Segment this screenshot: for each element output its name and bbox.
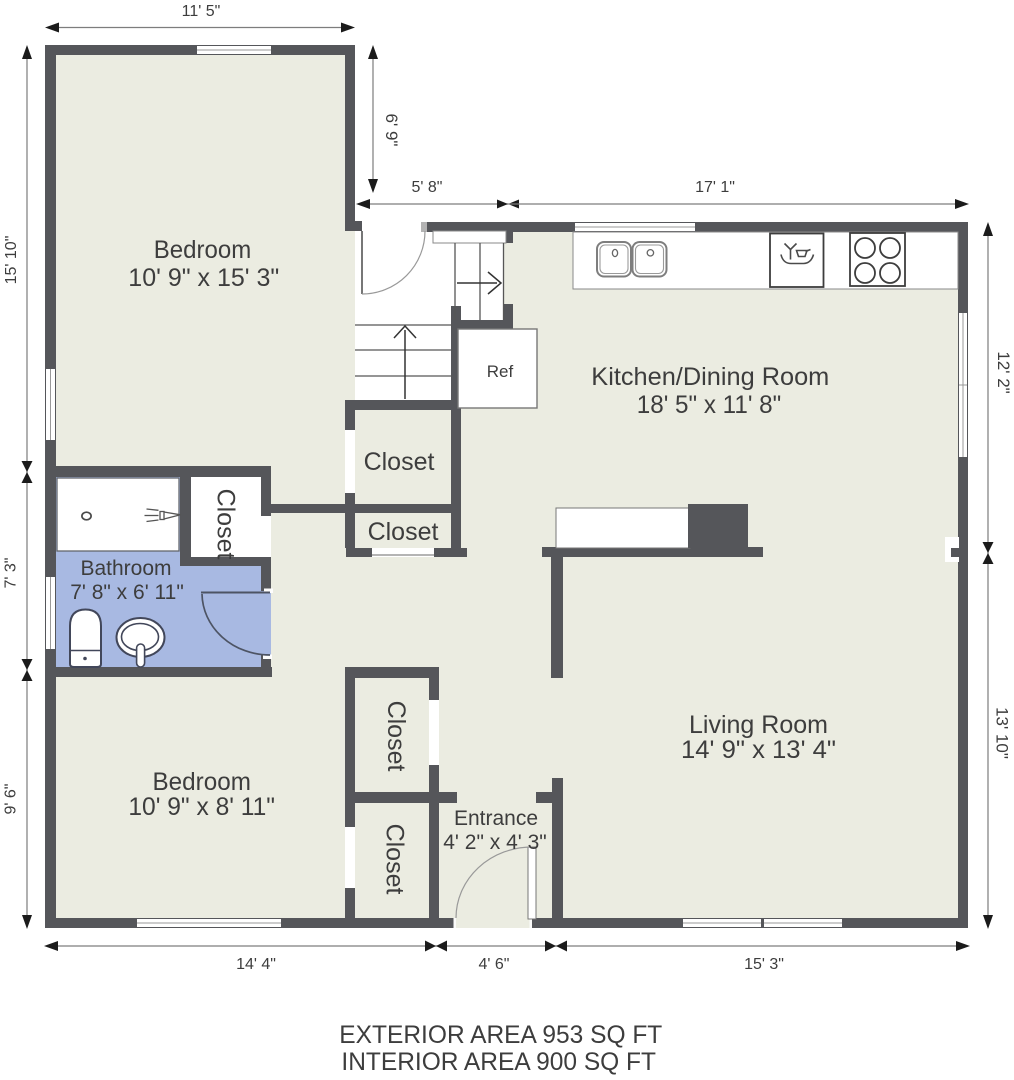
svg-text:Closet: Closet — [381, 824, 409, 895]
svg-text:Closet: Closet — [368, 518, 439, 546]
svg-text:INTERIOR AREA 900 SQ FT: INTERIOR AREA 900 SQ FT — [341, 1048, 656, 1076]
svg-text:Bathroom: Bathroom — [80, 557, 171, 580]
svg-text:17' 1": 17' 1" — [695, 179, 735, 196]
svg-text:7' 3": 7' 3" — [3, 558, 20, 589]
svg-text:13' 10": 13' 10" — [993, 707, 1012, 759]
svg-text:4' 2" x 4' 3": 4' 2" x 4' 3" — [443, 831, 546, 854]
svg-text:EXTERIOR AREA 953 SQ FT: EXTERIOR AREA 953 SQ FT — [339, 1021, 662, 1049]
svg-text:Entrance: Entrance — [454, 807, 538, 830]
svg-text:Closet: Closet — [212, 489, 240, 560]
svg-text:Ref: Ref — [487, 362, 514, 381]
svg-text:5' 8": 5' 8" — [412, 179, 443, 196]
svg-text:12' 2": 12' 2" — [994, 351, 1013, 393]
svg-text:11' 5": 11' 5" — [182, 3, 221, 20]
svg-text:Living Room: Living Room — [689, 711, 828, 739]
svg-text:Kitchen/Dining Room: Kitchen/Dining Room — [591, 363, 829, 391]
svg-text:Bedroom: Bedroom — [154, 236, 252, 264]
svg-text:Closet: Closet — [382, 701, 410, 772]
svg-text:14' 9" x 13' 4": 14' 9" x 13' 4" — [681, 736, 836, 764]
svg-text:18' 5" x 11' 8": 18' 5" x 11' 8" — [637, 391, 782, 419]
svg-text:10' 9" x 15' 3": 10' 9" x 15' 3" — [128, 264, 279, 292]
svg-text:15' 3": 15' 3" — [744, 956, 784, 973]
svg-text:15' 10": 15' 10" — [3, 236, 20, 285]
svg-text:7' 8" x 6' 11": 7' 8" x 6' 11" — [70, 581, 184, 604]
svg-text:4' 6": 4' 6" — [479, 956, 510, 973]
svg-text:14' 4": 14' 4" — [236, 956, 276, 973]
svg-text:10' 9" x 8' 11": 10' 9" x 8' 11" — [128, 793, 275, 821]
svg-text:Closet: Closet — [364, 448, 435, 476]
svg-text:Bedroom: Bedroom — [153, 768, 251, 796]
svg-text:9' 6": 9' 6" — [3, 784, 20, 815]
svg-text:6' 9": 6' 9" — [382, 114, 401, 147]
